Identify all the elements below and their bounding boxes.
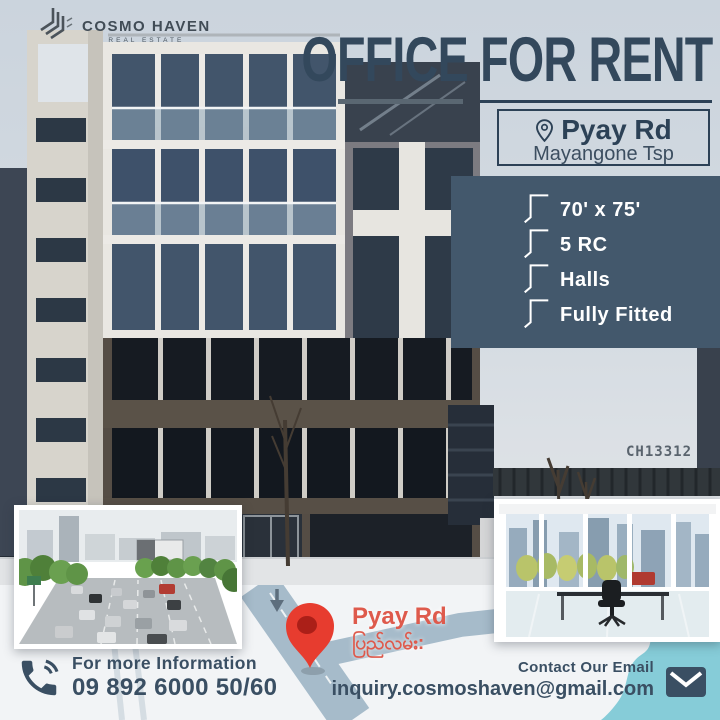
features-panel: 70' x 75' 5 RC Halls Fully Fitted [451, 176, 720, 348]
map-road-label: Pyay Rd [352, 603, 447, 631]
feature-label: 70' x 75' [560, 199, 641, 222]
brand-tagline: REAL ESTATE [82, 37, 211, 44]
phone-heading: For more Information [72, 653, 277, 674]
feature-item: 5 RC [523, 228, 720, 263]
corner-bracket-icon [523, 192, 550, 224]
corner-bracket-icon [523, 227, 550, 259]
feature-item: Fully Fitted [523, 298, 720, 333]
office-interior-inset [494, 499, 720, 642]
email-envelope-icon [665, 666, 707, 698]
street-photo-inset [14, 505, 242, 649]
title-underline-left [338, 99, 463, 104]
poster-title: OFFICE FOR RENT [301, 24, 712, 96]
title-underline-right [480, 100, 712, 103]
email-heading: Contact Our Email [331, 659, 654, 676]
listing-code: CH13312 [626, 444, 692, 460]
brand-name: COSMO HAVEN [82, 18, 211, 35]
location-box: Pyay Rd Mayangone Tsp [497, 109, 710, 166]
feature-label: Halls [560, 269, 610, 292]
feature-label: Fully Fitted [560, 304, 673, 327]
location-road: Pyay Rd [561, 114, 672, 146]
corner-bracket-icon [523, 262, 550, 294]
corner-bracket-icon [523, 297, 550, 329]
location-township: Mayangone Tsp [499, 143, 708, 166]
phone-contact: For more Information 09 892 6000 50/60 [16, 653, 277, 702]
feature-item: Halls [523, 263, 720, 298]
email-address[interactable]: inquiry.cosmoshaven@gmail.com [331, 678, 654, 701]
email-contact: Contact Our Email inquiry.cosmoshaven@gm… [331, 659, 654, 701]
feature-item: 70' x 75' [523, 193, 720, 228]
location-pin-icon [535, 118, 554, 143]
logo-icon [34, 4, 76, 46]
brand-logo: COSMO HAVEN REAL ESTATE [34, 4, 211, 46]
map-road-label-burmese: ပြည်လမ်း: [352, 631, 424, 659]
feature-label: 5 RC [560, 234, 608, 257]
phone-number[interactable]: 09 892 6000 50/60 [72, 674, 277, 702]
phone-icon [16, 655, 62, 701]
